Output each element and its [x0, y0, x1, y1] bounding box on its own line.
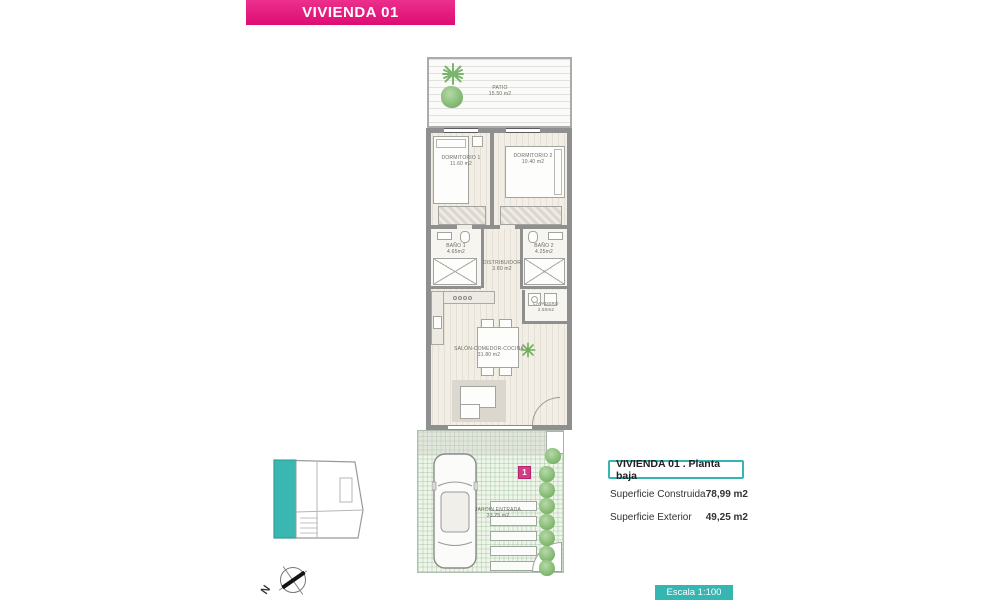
stove-icon: [452, 293, 472, 302]
room-label-distribuidor: DISTRIBUIDOR 3.80 m2: [477, 260, 527, 273]
room-label-bano1: BAÑO 1 4.65m2: [430, 243, 482, 256]
title-banner: VIVIENDA 01: [246, 0, 455, 25]
nightstand: [472, 136, 483, 147]
bush-icon: [539, 530, 555, 546]
wall: [431, 286, 481, 289]
toilet-icon: [528, 231, 538, 243]
pillow: [436, 139, 466, 148]
legend-row: Superficie Exterior 49,25 m2: [610, 512, 748, 523]
bush-icon: [539, 466, 555, 482]
wall: [522, 321, 567, 324]
site-key-plan: [262, 452, 377, 552]
bush-icon: [539, 482, 555, 498]
shower-icon: [524, 258, 565, 285]
compass-icon: N: [254, 556, 329, 606]
plant-icon: [441, 62, 465, 86]
sink-icon: [548, 232, 563, 240]
bush-icon: [539, 514, 555, 530]
wall: [490, 128, 494, 225]
room-label-bano2: BAÑO 2 4.25m2: [520, 243, 568, 256]
door-gap: [457, 225, 472, 229]
wardrobe-icon: [438, 206, 486, 225]
wall: [520, 286, 567, 289]
chair-icon: [481, 367, 494, 376]
chair-icon: [499, 367, 512, 376]
shower-icon: [433, 258, 477, 285]
sink-icon: [437, 232, 452, 240]
window: [444, 128, 478, 133]
bush-icon: [539, 560, 555, 576]
bush-icon: [545, 448, 561, 464]
room-label-dormitorio1: DORMITORIO 1 11.60 m2: [431, 155, 491, 168]
wall: [567, 128, 572, 430]
legend-value: 78,99 m2: [706, 489, 748, 500]
chair-icon: [481, 319, 494, 328]
legend-label: Superficie Exterior: [610, 512, 692, 523]
window: [506, 128, 540, 133]
legend-title-box: VIVIENDA 01 . Planta baja: [608, 460, 744, 479]
wall: [481, 229, 484, 288]
legend-rows: Superficie Construida 78,99 m2 Superfici…: [610, 489, 748, 535]
slat: [490, 561, 537, 571]
sofa-icon: [460, 404, 480, 419]
room-label-lavadero: LAVADERO 2.50m2: [521, 301, 571, 312]
slat: [490, 546, 537, 556]
room-label-patio: PATIO 15.50 m2: [460, 85, 540, 98]
kitchen-sink-icon: [433, 316, 442, 329]
wardrobe-icon: [500, 206, 562, 225]
door-gap: [500, 225, 515, 229]
legend-value: 49,25 m2: [706, 512, 748, 523]
toilet-icon: [460, 231, 470, 243]
bush-icon: [539, 498, 555, 514]
room-label-jardin: JARDIN ENTRADA 33.75 m2: [455, 507, 541, 520]
room-label-dormitorio2: DORMITORIO 2 10.40 m2: [503, 153, 563, 166]
chair-icon: [499, 319, 512, 328]
scale-badge: Escala 1:100: [655, 585, 733, 600]
room-label-salon: SALÓN-COMEDOR-COCINA 31.80 m2: [444, 346, 534, 359]
glass-door: [448, 425, 532, 430]
north-label: N: [259, 583, 273, 596]
unit-marker-badge: 1: [518, 466, 531, 479]
legend-label: Superficie Construida: [610, 489, 706, 500]
legend-row: Superficie Construida 78,99 m2: [610, 489, 748, 500]
page: VIVIENDA 01 PATIO 15.50 m2: [0, 0, 1001, 606]
slat: [490, 531, 537, 541]
legend-title: VIVIENDA 01 . Planta baja: [616, 458, 742, 482]
title-banner-label: VIVIENDA 01: [302, 4, 399, 21]
